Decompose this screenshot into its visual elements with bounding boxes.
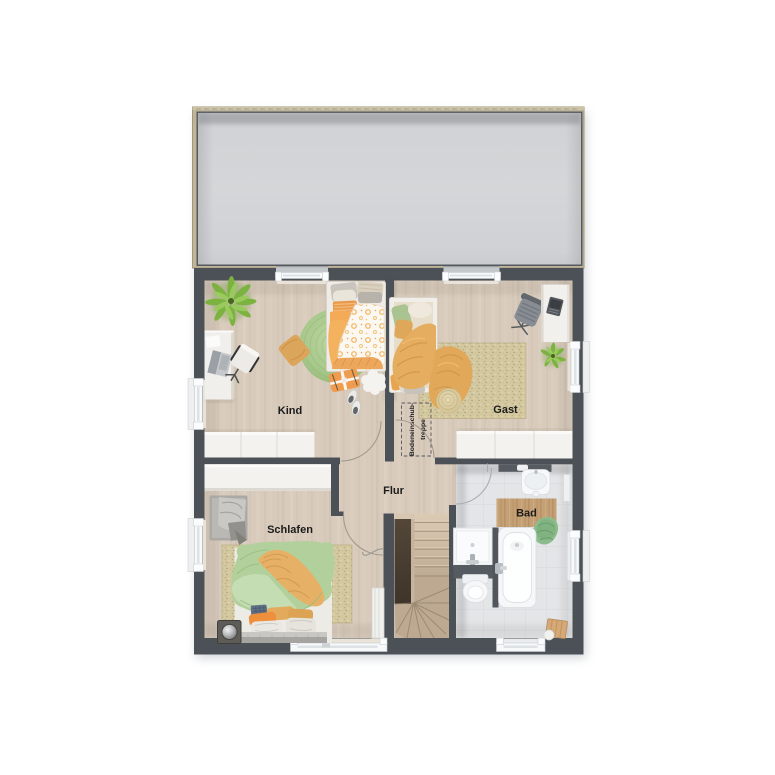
svg-text:Gast: Gast bbox=[493, 404, 518, 416]
svg-text:Kind: Kind bbox=[278, 405, 302, 417]
svg-text:Flur: Flur bbox=[383, 485, 404, 497]
svg-text:Schlafen: Schlafen bbox=[267, 524, 313, 536]
svg-text:Bodeneinschub-: Bodeneinschub- bbox=[409, 403, 416, 456]
svg-text:Bad: Bad bbox=[516, 508, 537, 520]
